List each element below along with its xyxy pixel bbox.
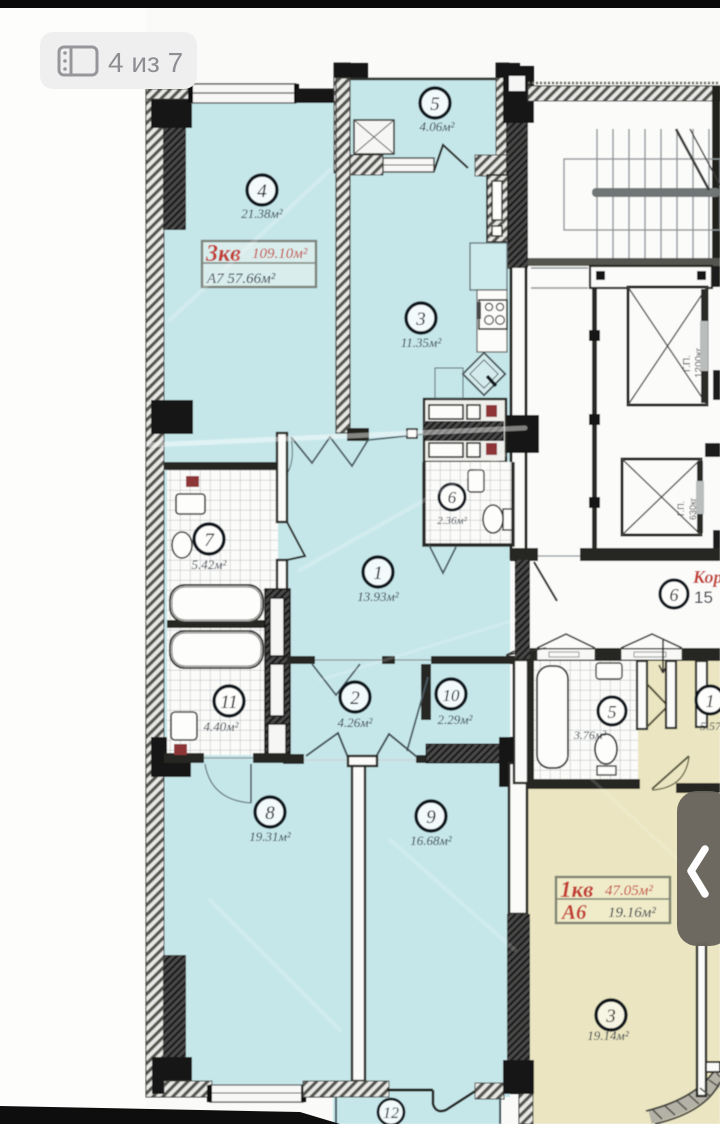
svg-text:5.57: 5.57 xyxy=(700,719,720,733)
svg-text:4.26м²: 4.26м² xyxy=(338,715,374,730)
svg-text:Кор: Кор xyxy=(692,567,720,587)
svg-text:13.93м²: 13.93м² xyxy=(357,589,400,604)
svg-text:6: 6 xyxy=(670,585,679,605)
svg-text:11: 11 xyxy=(220,692,238,713)
svg-text:1кв: 1кв xyxy=(560,877,593,902)
svg-text:А6: А6 xyxy=(560,900,587,924)
svg-text:4.06м²: 4.06м² xyxy=(420,119,456,134)
svg-text:2: 2 xyxy=(350,688,360,709)
svg-text:19.31м²: 19.31м² xyxy=(249,829,292,844)
svg-text:109.10м²: 109.10м² xyxy=(252,246,308,262)
svg-text:19.16м²: 19.16м² xyxy=(608,905,656,921)
svg-text:3: 3 xyxy=(605,1006,616,1027)
svg-text:5.42м²: 5.42м² xyxy=(192,557,228,572)
svg-text:6: 6 xyxy=(448,488,457,507)
svg-text:5: 5 xyxy=(430,94,440,115)
svg-text:4 из 7: 4 из 7 xyxy=(108,47,183,78)
svg-text:3.76м²: 3.76м² xyxy=(573,728,607,742)
svg-text:16.68м²: 16.68м² xyxy=(410,833,453,848)
svg-text:19.14м²: 19.14м² xyxy=(587,1028,630,1043)
svg-text:Г.П.: Г.П. xyxy=(682,355,693,372)
svg-text:9: 9 xyxy=(426,807,436,828)
svg-text:5: 5 xyxy=(608,702,617,722)
svg-text:1: 1 xyxy=(373,563,383,584)
svg-text:47.05м²: 47.05м² xyxy=(605,883,653,899)
svg-text:12: 12 xyxy=(383,1105,399,1122)
svg-text:10: 10 xyxy=(443,686,461,705)
svg-text:3кв: 3кв xyxy=(205,241,241,267)
svg-text:4.40м²: 4.40м² xyxy=(204,719,240,734)
svg-text:8: 8 xyxy=(265,803,275,824)
svg-text:11.35м²: 11.35м² xyxy=(401,335,443,350)
svg-text:2.36м²: 2.36м² xyxy=(437,515,467,527)
svg-text:2.29м²: 2.29м² xyxy=(438,712,474,727)
svg-text:15: 15 xyxy=(694,588,713,607)
svg-text:1: 1 xyxy=(706,691,715,711)
svg-text:4: 4 xyxy=(257,181,267,202)
svg-text:7: 7 xyxy=(204,530,215,551)
svg-text:3: 3 xyxy=(415,309,426,330)
svg-text:Г.П.: Г.П. xyxy=(676,501,686,516)
